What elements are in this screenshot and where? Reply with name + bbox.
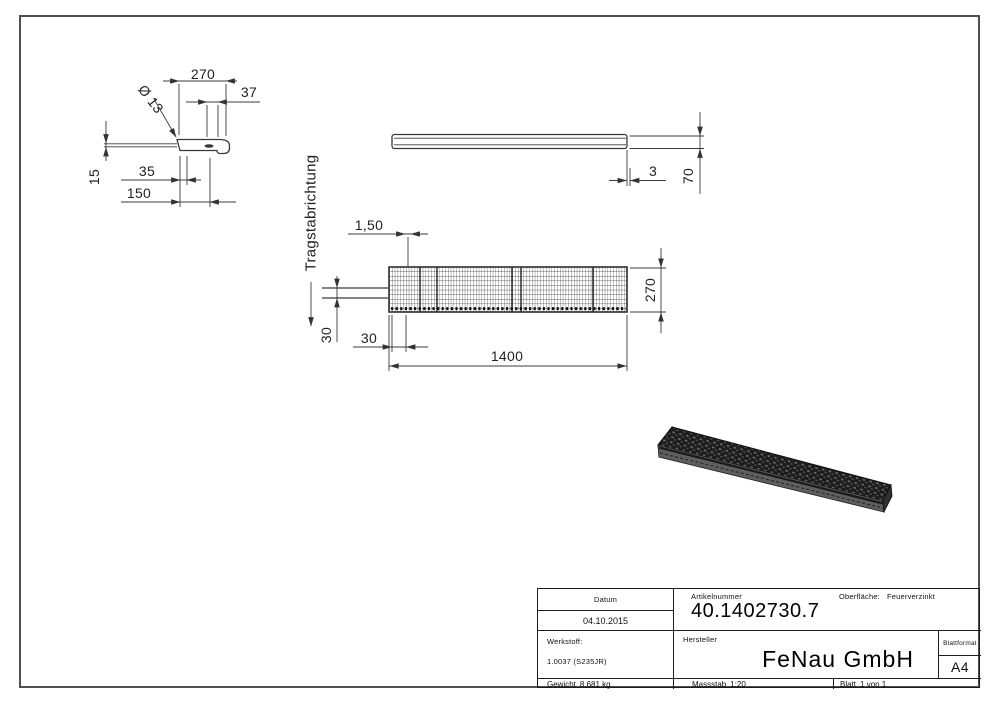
scale-value: 1:20 <box>730 680 746 689</box>
dim-detail-hole-offset: 37 <box>241 84 257 100</box>
material-value: 1.0037 (S235JR) <box>547 657 607 666</box>
weight-value: 8.681 kg <box>580 680 611 689</box>
sheet-format-label: Blattformat <box>943 640 977 647</box>
dim-detail-depth: 150 <box>127 185 151 201</box>
manufacturer-cell: Hersteller FeNau GmbH <box>674 631 939 678</box>
plan-view <box>311 234 666 371</box>
manufacturer-value: FeNau GmbH <box>674 646 938 673</box>
manufacturer-label: Hersteller <box>683 635 717 644</box>
article-value: 40.1402730.7 <box>691 600 819 623</box>
date-value: 04.10.2015 <box>583 616 628 626</box>
support-direction-label: Tragstabrichtung <box>303 155 320 272</box>
dim-side-end-thickness: 3 <box>649 163 657 179</box>
scale-label: Massstab <box>692 680 726 689</box>
dim-detail-thickness: 15 <box>86 169 102 185</box>
dim-plan-length: 1400 <box>491 348 523 364</box>
material-cell: Werkstoff: 1.0037 (S235JR) <box>538 631 674 678</box>
dim-plan-bar-thickness: 1,50 <box>355 217 383 233</box>
dim-detail-width: 270 <box>191 66 215 82</box>
date-label-cell: Datum <box>538 589 674 611</box>
dim-plan-pitch-bottom: 30 <box>361 330 377 346</box>
weight-cell: Gewicht 8.681 kg <box>538 678 674 689</box>
dim-plan-pitch-left: 30 <box>318 327 334 343</box>
sheet-number-cell: Blatt 1 von 1 <box>834 678 981 689</box>
date-value-cell: 04.10.2015 <box>538 611 674 631</box>
weight-label: Gewicht <box>547 680 576 689</box>
dim-plan-width: 270 <box>642 278 658 302</box>
article-cell: Artikelnummer 40.1402730.7 Oberfläche: F… <box>674 589 981 631</box>
sheet-format-value: A4 <box>951 659 969 675</box>
dim-detail-edge-to-hole: 35 <box>139 163 155 179</box>
dim-side-height: 70 <box>680 168 696 184</box>
isometric-view <box>658 427 892 512</box>
title-block: Datum 04.10.2015 Artikelnummer 40.140273… <box>537 588 980 688</box>
material-label: Werkstoff: <box>547 637 582 646</box>
sheet-format-value-cell: A4 <box>939 656 981 678</box>
sheet-value: 1 von 1 <box>860 680 886 689</box>
surface-value: Feuerverzinkt <box>887 592 935 601</box>
date-label: Datum <box>594 595 617 604</box>
surface-label: Oberfläche: <box>839 592 880 601</box>
drawing-sheet: 270 37 Ø 13 15 35 150 3 70 Tragstabricht… <box>0 0 1000 706</box>
sheet-label: Blatt <box>840 680 856 689</box>
side-view <box>392 112 704 194</box>
sheet-format-label-cell: Blattformat <box>939 631 981 656</box>
scale-cell: Massstab 1:20 <box>674 678 834 689</box>
